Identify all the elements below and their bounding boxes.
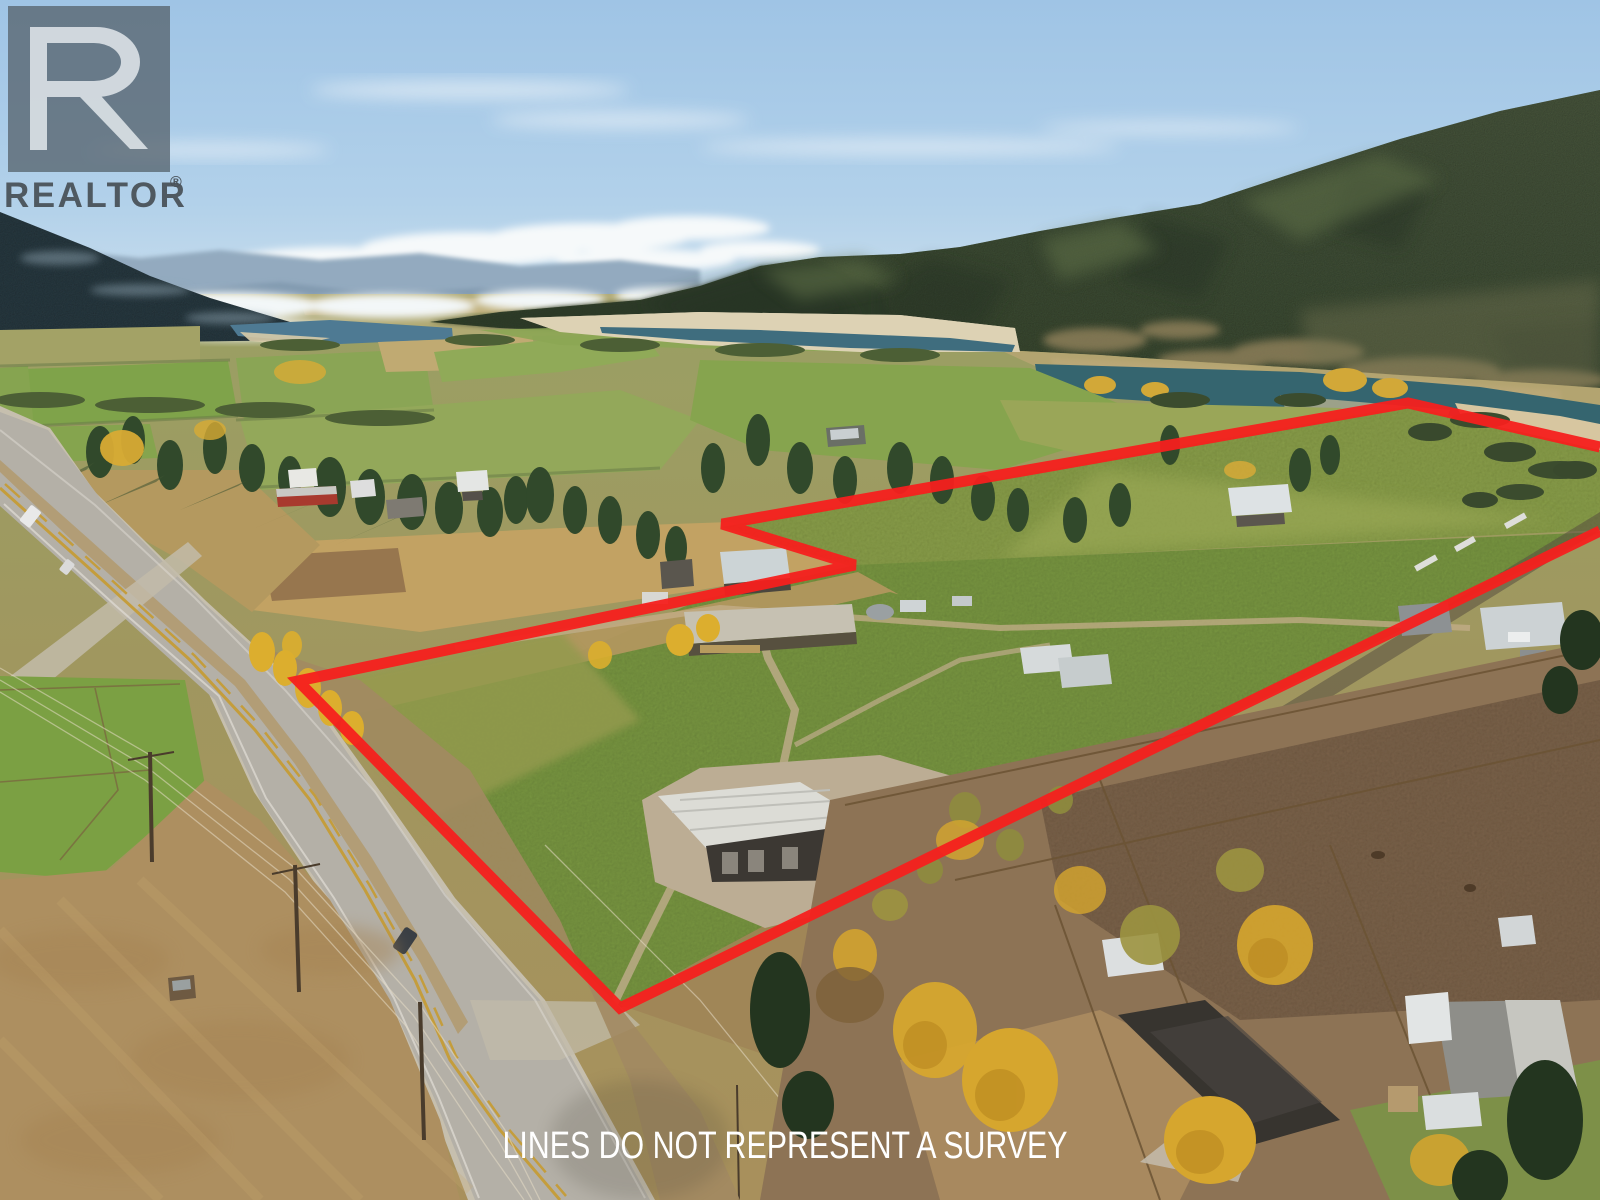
svg-text:®: ®	[170, 174, 182, 191]
svg-text:LINES DO NOT REPRESENT A SURVE: LINES DO NOT REPRESENT A SURVEY	[503, 1125, 1068, 1167]
svg-text:REALTOR: REALTOR	[4, 176, 187, 215]
